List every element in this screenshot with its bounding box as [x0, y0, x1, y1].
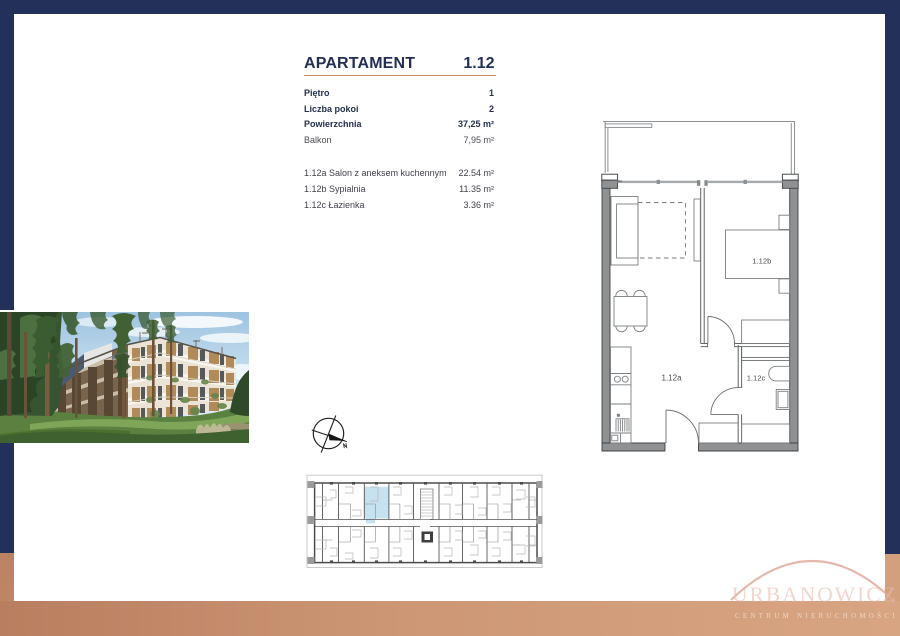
svg-text:CENTRUM NIERUCHOMOŚCI: CENTRUM NIERUCHOMOŚCI [735, 612, 898, 620]
svg-text:1.12a: 1.12a [662, 374, 683, 383]
svg-text:1.12b: 1.12b [752, 256, 771, 265]
svg-text:URBANOWICZ: URBANOWICZ [732, 583, 898, 607]
svg-text:1.12c: 1.12c [747, 374, 766, 383]
